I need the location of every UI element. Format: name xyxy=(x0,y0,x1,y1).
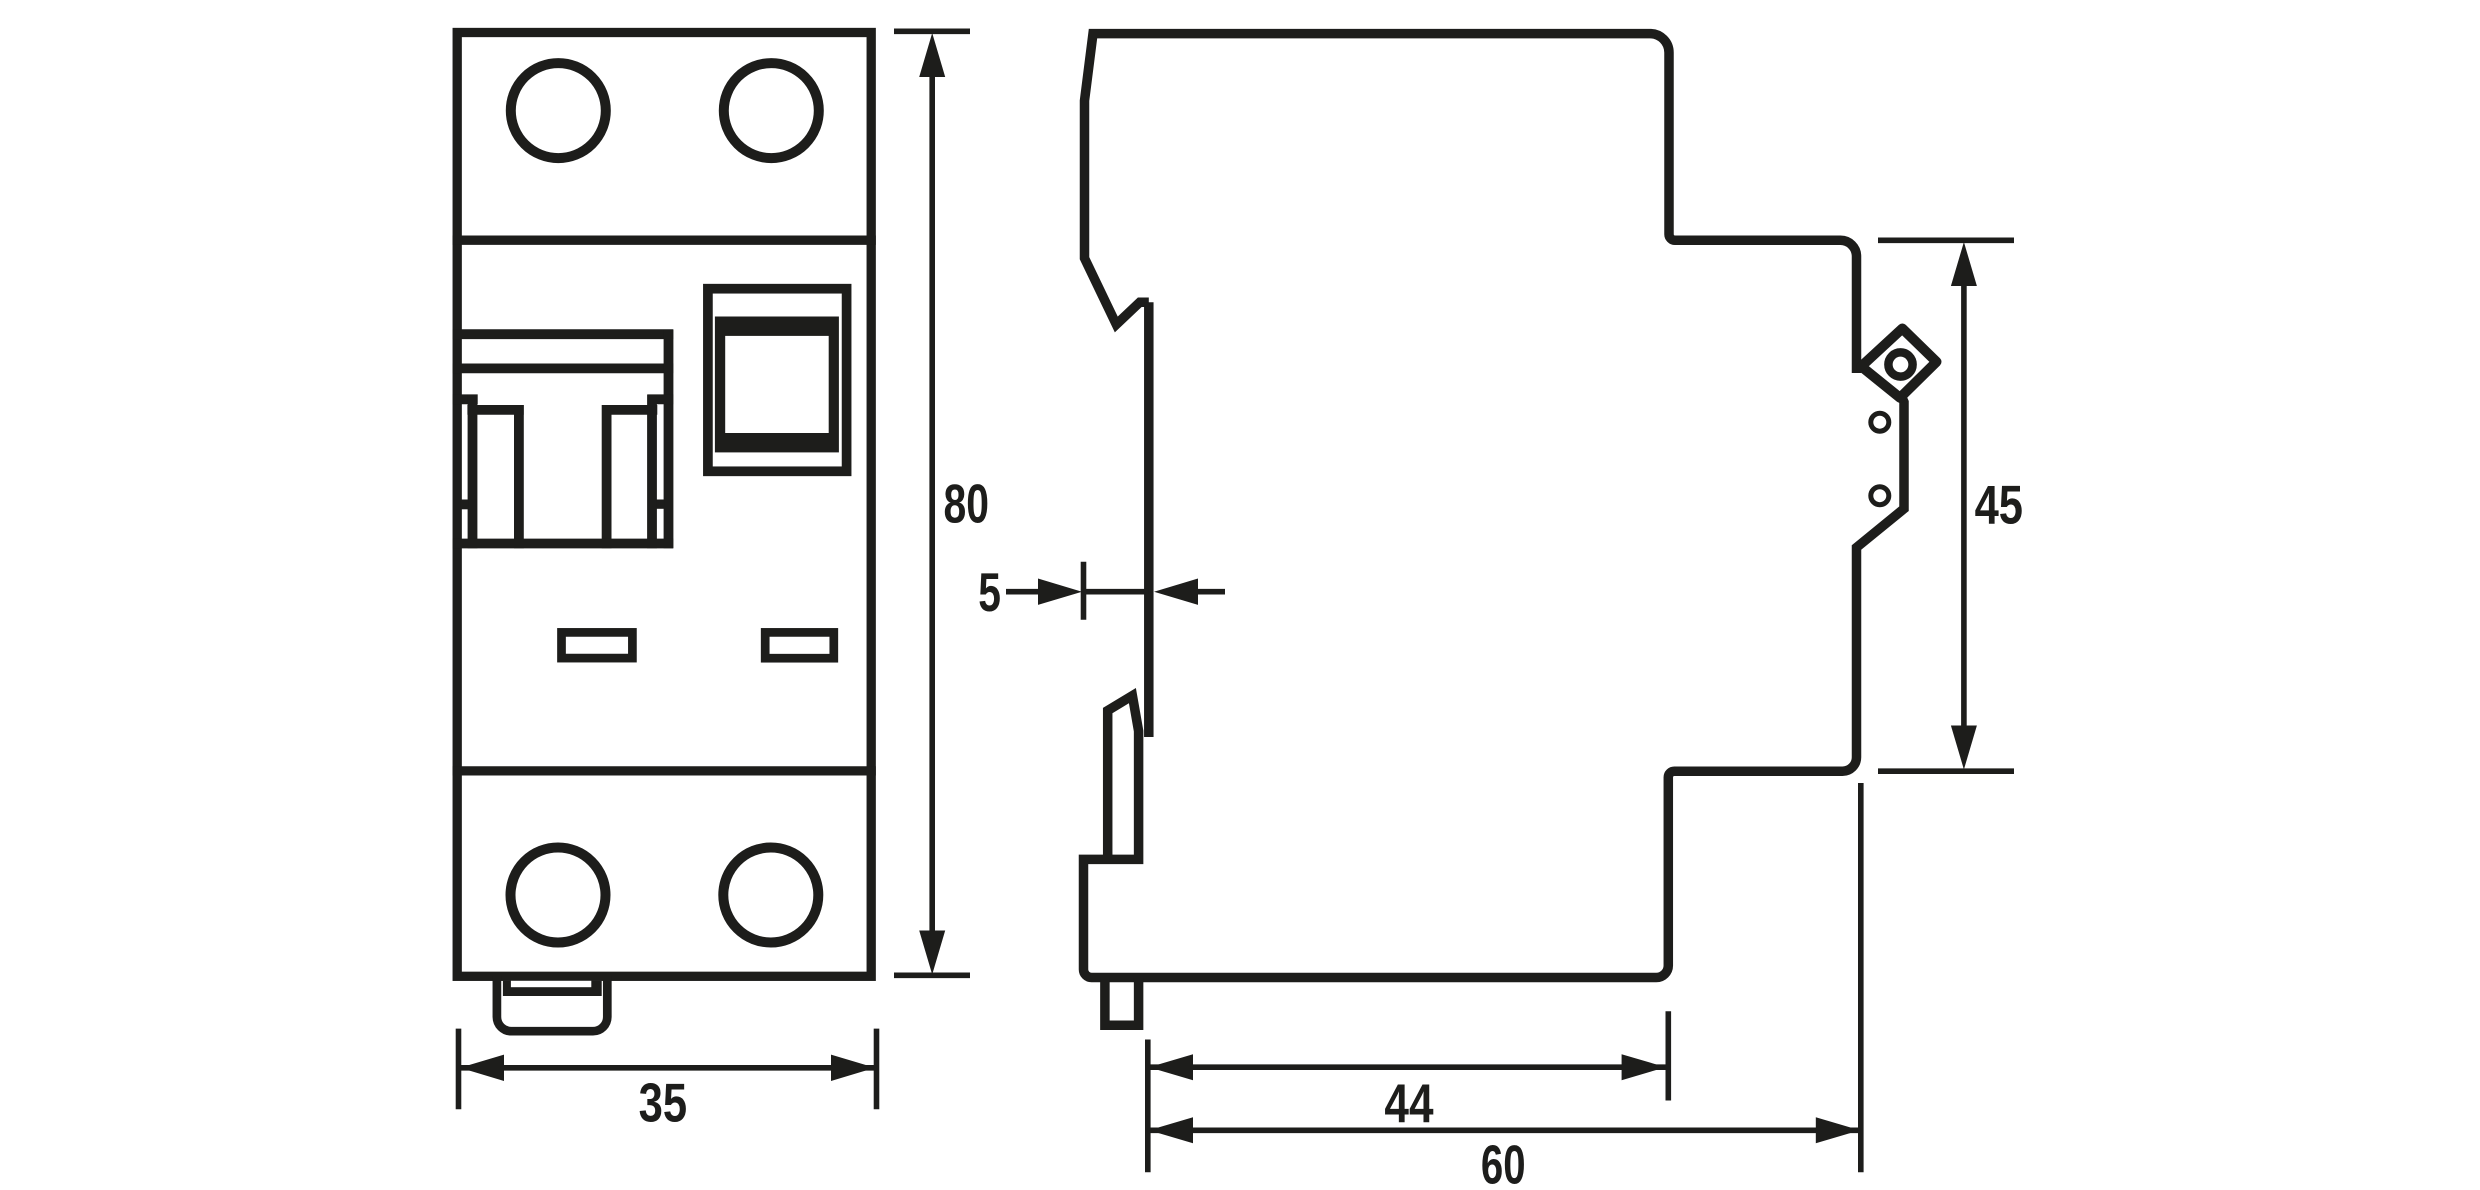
svg-text:35: 35 xyxy=(639,1071,688,1133)
svg-text:45: 45 xyxy=(1975,474,2023,536)
svg-text:44: 44 xyxy=(1384,1072,1433,1134)
svg-text:80: 80 xyxy=(944,472,990,534)
svg-text:60: 60 xyxy=(1481,1134,1526,1190)
svg-text:5: 5 xyxy=(978,561,1001,623)
